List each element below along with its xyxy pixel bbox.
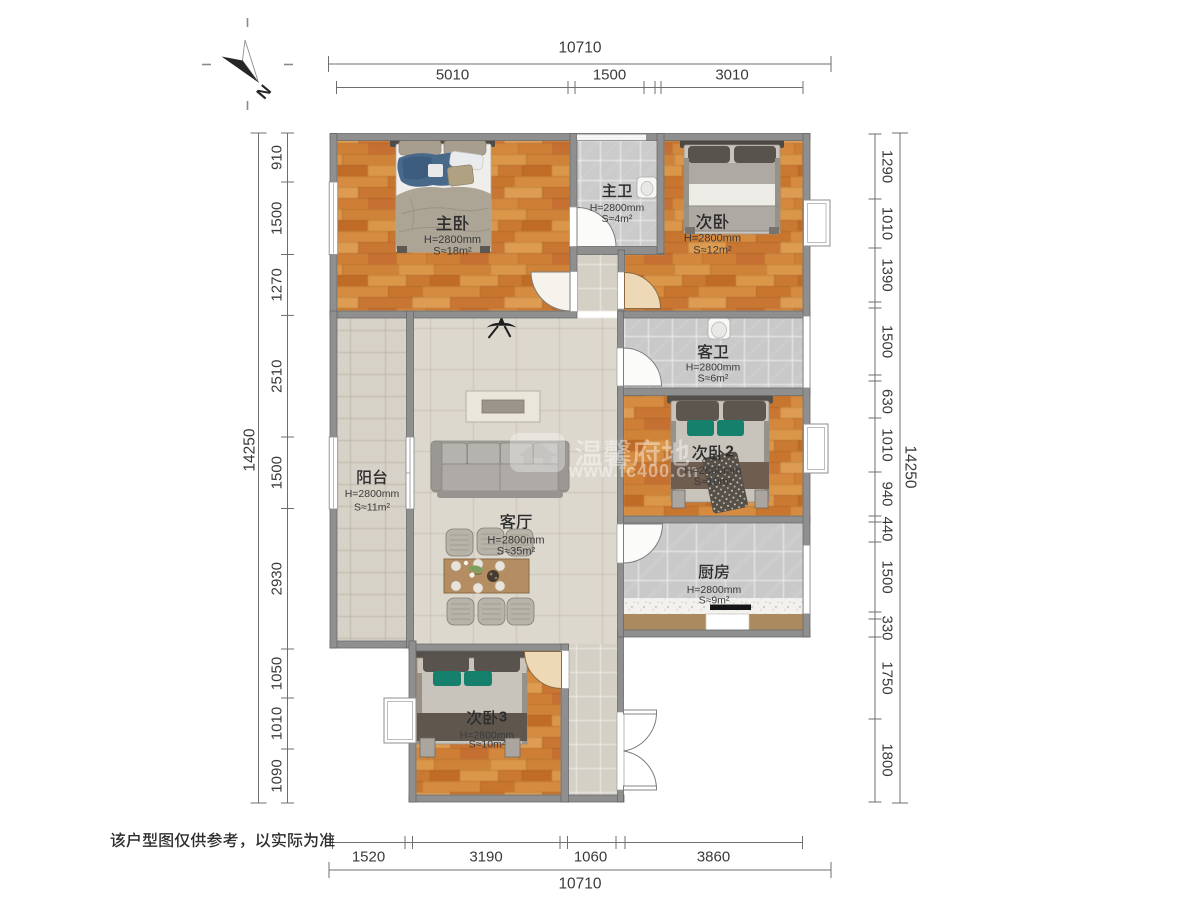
- svg-text:S≈18m²: S≈18m²: [433, 246, 472, 258]
- svg-text:2930: 2930: [269, 562, 286, 595]
- svg-text:www.fc400.cn: www.fc400.cn: [568, 461, 699, 481]
- svg-text:1500: 1500: [879, 325, 896, 358]
- svg-text:1060: 1060: [574, 849, 607, 866]
- svg-text:3: 3: [499, 709, 507, 726]
- svg-text:14250: 14250: [242, 428, 259, 471]
- svg-text:1520: 1520: [352, 849, 385, 866]
- svg-text:14250: 14250: [902, 445, 919, 488]
- svg-text:H=2800mm: H=2800mm: [684, 233, 741, 245]
- svg-text:910: 910: [269, 145, 286, 170]
- svg-text:1500: 1500: [269, 456, 286, 489]
- svg-text:440: 440: [879, 516, 896, 541]
- svg-text:S≈10m²: S≈10m²: [694, 476, 733, 488]
- svg-text:1090: 1090: [269, 759, 286, 792]
- svg-text:1500: 1500: [269, 202, 286, 235]
- svg-text:2510: 2510: [269, 360, 286, 393]
- svg-text:3010: 3010: [715, 67, 748, 84]
- svg-text:630: 630: [879, 389, 896, 414]
- svg-text:1500: 1500: [593, 67, 626, 84]
- svg-text:1800: 1800: [879, 743, 896, 776]
- svg-text:2: 2: [725, 444, 734, 461]
- svg-text:330: 330: [879, 615, 896, 640]
- svg-text:S≈11m²: S≈11m²: [354, 502, 390, 514]
- svg-text:S≈12m²: S≈12m²: [693, 245, 732, 257]
- svg-text:940: 940: [879, 481, 896, 506]
- svg-text:10710: 10710: [558, 40, 601, 57]
- svg-text:S≈9m²: S≈9m²: [699, 595, 730, 607]
- svg-text:H=2800mm: H=2800mm: [424, 234, 481, 246]
- svg-text:3190: 3190: [469, 849, 502, 866]
- svg-text:1500: 1500: [879, 560, 896, 593]
- svg-text:1290: 1290: [879, 150, 896, 183]
- svg-text:10710: 10710: [558, 876, 601, 893]
- svg-text:1050: 1050: [269, 657, 286, 690]
- svg-text:S≈4m²: S≈4m²: [602, 213, 633, 225]
- svg-text:1010: 1010: [879, 207, 896, 240]
- svg-text:1750: 1750: [879, 661, 896, 694]
- svg-text:5010: 5010: [436, 67, 469, 84]
- svg-text:1270: 1270: [269, 268, 286, 301]
- svg-text:1390: 1390: [879, 258, 896, 291]
- svg-text:S≈10m²: S≈10m²: [469, 739, 506, 751]
- svg-text:S≈35m²: S≈35m²: [497, 546, 536, 558]
- svg-text:H=2800mm: H=2800mm: [345, 488, 400, 500]
- svg-text:S≈6m²: S≈6m²: [698, 373, 729, 385]
- svg-text:1010: 1010: [879, 428, 896, 461]
- svg-text:N: N: [253, 81, 275, 103]
- svg-text:3860: 3860: [697, 849, 730, 866]
- svg-text:1010: 1010: [269, 707, 286, 740]
